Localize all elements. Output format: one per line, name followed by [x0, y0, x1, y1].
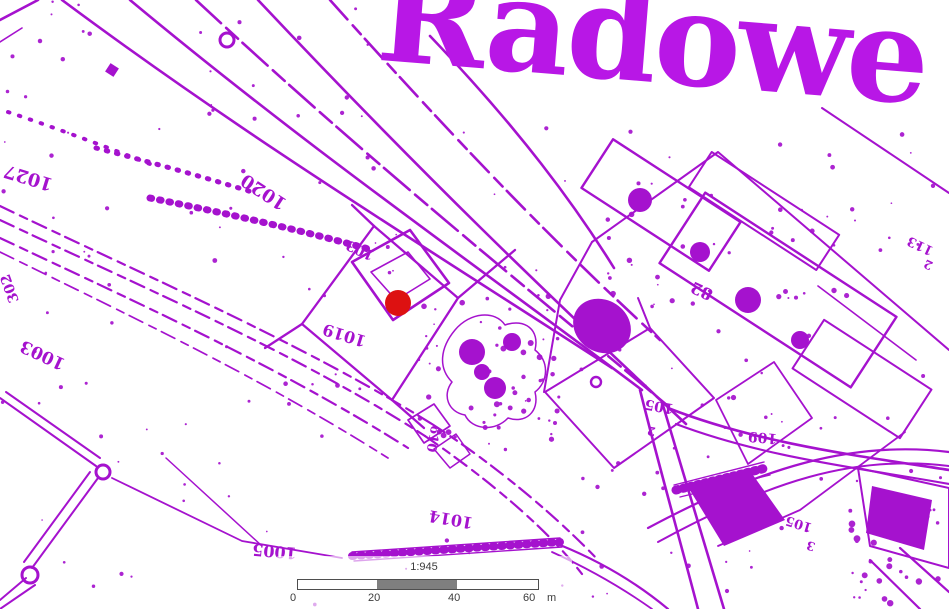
scale-unit: m [547, 592, 556, 604]
parcel-label: 2 [922, 257, 935, 273]
parcel-label: 1027 [1, 160, 55, 195]
parcel-label: 82 [688, 278, 716, 305]
map-canvas[interactable]: 1027102010310193021003610101410058210521… [0, 0, 949, 609]
scale-bar-middle-segment [377, 580, 457, 589]
scale-ratio-label: 1:945 [276, 561, 572, 573]
scalebar: 1:945 0 20 40 60 m [276, 556, 572, 609]
scale-tick-40: 40 [448, 592, 460, 604]
parcel-label: 105 [784, 512, 814, 534]
parcel-label: 610 [423, 424, 442, 453]
parcel-label: 1020 [237, 169, 290, 214]
tree-cluster-center [443, 315, 546, 427]
map-viewer: 1027102010310193021003610101410058210521… [0, 0, 949, 609]
parcel-label: 113 [905, 233, 936, 258]
parcel-label: 105 [644, 396, 676, 417]
parcel-label: 302 [0, 272, 23, 305]
scale-tick-0: 0 [290, 592, 296, 604]
scale-tick-20: 20 [368, 592, 380, 604]
buildings-solid-south [688, 468, 949, 568]
parcel-label: 109 [747, 428, 778, 446]
vegetation-rows [8, 112, 372, 250]
scale-bar [297, 579, 539, 590]
parcel-label: 1014 [427, 506, 474, 532]
survey-points [22, 33, 601, 583]
scale-tick-60: 60 [523, 592, 535, 604]
parcel-label: 3 [805, 538, 817, 554]
parcel-label: 1003 [17, 335, 68, 373]
parcel-label: 2 [646, 423, 657, 438]
location-marker-dot[interactable] [385, 290, 411, 316]
road-bundle-dashed [0, 206, 598, 574]
